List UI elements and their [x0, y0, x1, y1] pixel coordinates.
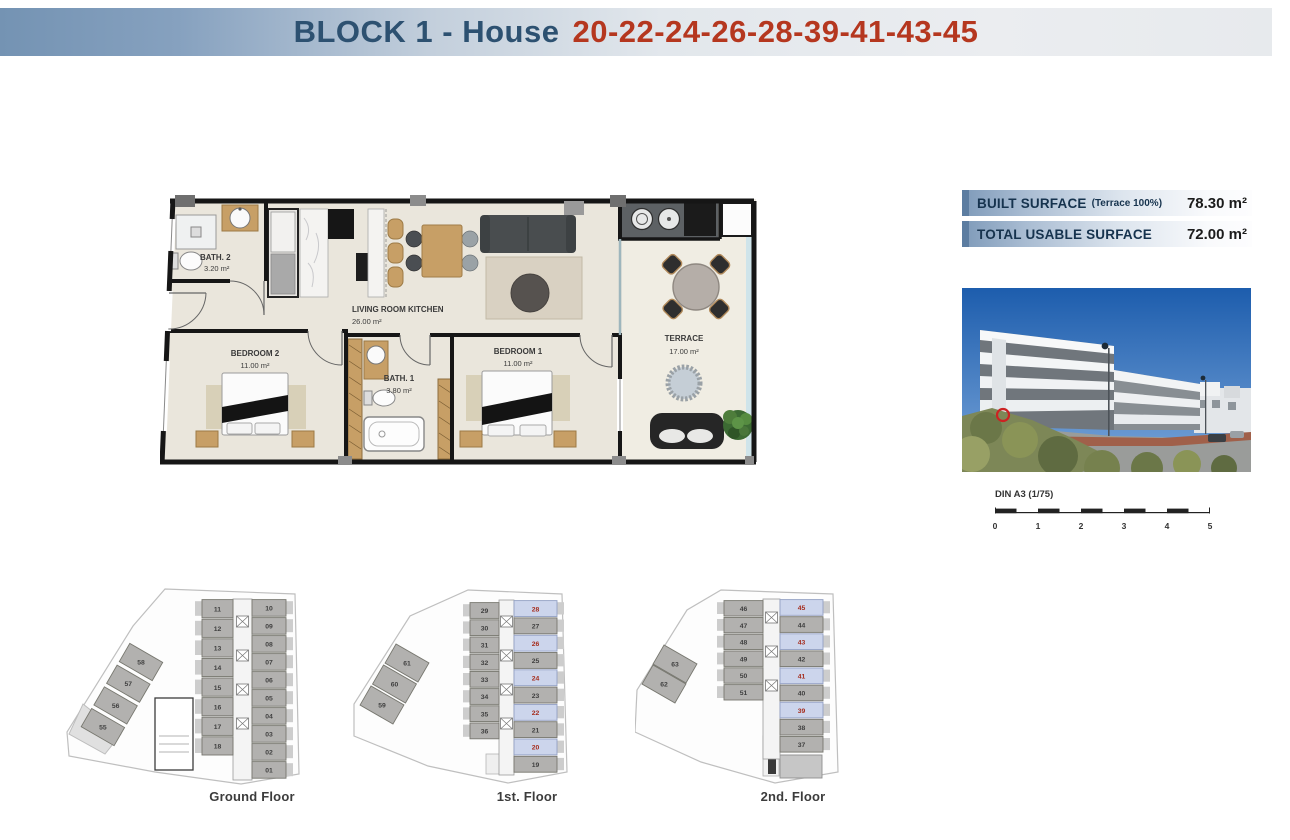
terrace-table	[673, 264, 719, 310]
scale-segment	[1038, 509, 1060, 514]
closet-shelf	[271, 212, 295, 252]
balcony-tab	[717, 602, 724, 614]
bar-stool	[388, 243, 403, 263]
unit-number: 50	[740, 673, 748, 680]
unit-number: 14	[214, 665, 222, 672]
balcony-tab	[463, 673, 470, 685]
balcony-tab	[823, 670, 830, 682]
unit-number: 40	[798, 691, 806, 698]
unit-number: 62	[660, 681, 668, 688]
unit-number: 55	[99, 725, 107, 732]
pillow	[227, 423, 252, 434]
page-title-house-numbers: 20-22-24-26-28-39-41-43-45	[572, 14, 978, 50]
bath2-sink	[230, 208, 250, 228]
sofa-arm	[566, 215, 576, 253]
unnumbered-unit	[780, 755, 822, 778]
scale-tick: 1	[1036, 521, 1041, 531]
unit-number: 47	[740, 623, 748, 630]
second-floor-svg: 4647484950514544434241403938376362	[635, 586, 885, 788]
unit-number: 13	[214, 646, 222, 653]
terrace-cushion	[687, 429, 713, 443]
scale-tick: 0	[993, 521, 998, 531]
unit-number: 23	[532, 693, 540, 700]
unit-number: 56	[112, 703, 120, 710]
shower-drain	[191, 227, 201, 237]
scale-segment	[995, 509, 1017, 514]
scale-segment	[1124, 509, 1146, 514]
unit-number: 04	[265, 714, 273, 721]
unit-number: 37	[798, 742, 806, 749]
unit-number: 22	[532, 710, 540, 717]
scale-tick: 3	[1122, 521, 1127, 531]
balcony-tab	[195, 680, 202, 695]
dining-chair	[406, 255, 422, 271]
balcony-tab	[823, 618, 830, 630]
scale-tick: 4	[1165, 521, 1170, 531]
unit-number: 42	[798, 656, 806, 663]
balcony-tab	[463, 621, 470, 633]
balcony-tab	[463, 690, 470, 702]
stair-core	[768, 758, 776, 774]
second-floor-label: 2nd. Floor	[761, 789, 826, 804]
pillow	[488, 425, 514, 436]
unit-number: 46	[740, 606, 748, 613]
balcony-tab	[557, 689, 564, 701]
scale-tick: 5	[1208, 521, 1213, 531]
bath1-area: 3.80 m²	[386, 386, 412, 395]
built-surface-value: 78.30 m²	[1187, 195, 1247, 212]
balcony-tab	[557, 706, 564, 718]
apartment-floor-plan: BATH. 2 3.20 m² LIVING ROOM KITCHEN 26.0…	[160, 193, 760, 470]
balcony-tab	[286, 619, 293, 632]
ground-floor-label: Ground Floor	[209, 789, 294, 804]
closet-shelf-dark	[271, 254, 295, 294]
unit-number: 28	[532, 606, 540, 613]
scale-label: DIN A3 (1/75)	[995, 489, 1213, 500]
nightstand	[292, 431, 314, 447]
unit-number: 01	[265, 768, 273, 775]
unit-number: 18	[214, 744, 222, 751]
bedroom1-label: BEDROOM 1	[494, 347, 543, 356]
living-label: LIVING ROOM KITCHEN	[352, 305, 444, 314]
scale-segment	[1081, 509, 1103, 514]
surface-panel: BUILT SURFACE (Terrace 100%) 78.30 m² TO…	[962, 190, 1252, 252]
terrace-sofa	[650, 413, 724, 449]
unit-number: 48	[740, 640, 748, 647]
unit-number: 57	[125, 681, 133, 688]
toilet-tank	[364, 391, 372, 405]
header-band: BLOCK 1 - House 20-22-24-26-28-39-41-43-…	[0, 8, 1272, 56]
unit-number: 41	[798, 674, 806, 681]
balcony-tab	[195, 738, 202, 753]
balcony-tab	[286, 655, 293, 668]
unit-number: 36	[481, 729, 489, 736]
balcony-tab	[286, 673, 293, 686]
wardrobe	[348, 339, 362, 459]
unit-number: 43	[798, 639, 806, 646]
background-buildings	[1194, 382, 1251, 433]
unit-number: 32	[481, 660, 489, 667]
unit-number: 16	[214, 704, 222, 711]
unit-number: 63	[671, 661, 679, 668]
kitchen-island	[368, 209, 384, 297]
sofa-arm	[480, 215, 490, 253]
balcony-tab	[557, 723, 564, 735]
first-floor-label: 1st. Floor	[497, 789, 558, 804]
balcony-tab	[557, 602, 564, 614]
washer-icon	[632, 209, 653, 230]
balcony-tab	[823, 738, 830, 750]
scale-end-tick	[995, 508, 996, 514]
balcony-tab	[717, 619, 724, 631]
dining-table	[422, 225, 462, 277]
storage-box	[722, 203, 752, 236]
coffee-pouf	[511, 274, 549, 312]
row-accent-bar	[962, 221, 969, 247]
dining-chair	[462, 231, 478, 247]
living-area: 26.00 m²	[352, 317, 382, 326]
balcony-tab	[195, 640, 202, 655]
scale-bar-graphic	[995, 506, 1210, 515]
unit-number: 19	[532, 762, 540, 769]
balcony-tab	[286, 727, 293, 740]
built-surface-label: BUILT SURFACE	[977, 196, 1087, 211]
unit-number: 49	[740, 656, 748, 663]
balcony-tab	[195, 699, 202, 714]
unit-number: 31	[481, 643, 489, 650]
unit-number: 44	[798, 622, 806, 629]
terrace-round-rug	[668, 367, 700, 399]
bath2-area: 3.20 m²	[204, 264, 230, 273]
scale-ticks: 0 1 2 3 4 5	[995, 521, 1210, 533]
building-photo	[962, 288, 1251, 472]
balcony-tab	[717, 686, 724, 698]
scale-end-tick	[1209, 508, 1210, 514]
balcony-tab	[557, 637, 564, 649]
unit-number: 08	[265, 642, 273, 649]
second-floor-plan: 4647484950514544434241403938376362 2nd. …	[635, 586, 890, 821]
scale-bar: DIN A3 (1/75) 0 1 2 3 4 5	[995, 489, 1213, 533]
balcony-tab	[557, 654, 564, 666]
balcony-tab	[463, 604, 470, 616]
balcony-tab	[463, 639, 470, 651]
unit-number: 45	[798, 605, 806, 612]
built-surface-note: (Terrace 100%)	[1092, 198, 1162, 209]
balcony-tab	[557, 620, 564, 632]
dining-chair	[462, 255, 478, 271]
balcony-tab	[557, 758, 564, 770]
dining-chair	[406, 231, 422, 247]
unit-number: 24	[532, 675, 540, 682]
unit-number: 27	[532, 624, 540, 631]
apartment-floor-plan-svg: BATH. 2 3.20 m² LIVING ROOM KITCHEN 26.0…	[160, 193, 760, 470]
balcony-tab	[823, 635, 830, 647]
balcony-tab	[286, 691, 293, 704]
bath1-label: BATH. 1	[384, 374, 415, 383]
balcony-tab	[557, 671, 564, 683]
unit-number: 11	[214, 606, 221, 613]
courtyard	[155, 698, 193, 770]
pillow	[520, 425, 546, 436]
unit-number: 10	[265, 606, 273, 613]
unit-number: 17	[214, 724, 222, 731]
unit-number: 59	[378, 702, 386, 709]
first-floor-svg: 2930313233343536282726252423222120196160…	[340, 586, 590, 788]
scale-segment	[1167, 509, 1189, 514]
unit-number: 15	[214, 685, 222, 692]
nightstand	[554, 431, 576, 447]
unit-number: 34	[481, 694, 489, 701]
unit-number: 09	[265, 624, 273, 631]
bar-stool	[388, 267, 403, 287]
unit-number: 61	[403, 660, 411, 667]
pillow	[255, 423, 280, 434]
balcony-tab	[463, 707, 470, 719]
unit-number: 38	[798, 725, 806, 732]
unit-number: 02	[265, 750, 273, 757]
nightstand	[196, 431, 218, 447]
utility-sink-drain	[667, 217, 671, 221]
unit-number: 60	[391, 681, 399, 688]
faucet	[238, 207, 241, 210]
terrace-cushion	[659, 429, 685, 443]
unit-number: 05	[265, 696, 273, 703]
usable-surface-row: TOTAL USABLE SURFACE 72.00 m²	[962, 221, 1252, 247]
unit-number: 20	[532, 745, 540, 752]
row-accent-bar	[962, 190, 969, 216]
balcony-tab	[823, 704, 830, 716]
unit-number: 29	[481, 608, 489, 615]
unit-number: 21	[532, 727, 540, 734]
kitchen-counter	[300, 209, 328, 297]
balcony-tab	[195, 621, 202, 636]
unit-number: 30	[481, 625, 489, 632]
terrace-area: 17.00 m²	[669, 347, 699, 356]
unit-number: 26	[532, 641, 540, 648]
unit-number: 25	[532, 658, 540, 665]
usable-surface-value: 72.00 m²	[1187, 226, 1247, 243]
built-surface-row: BUILT SURFACE (Terrace 100%) 78.30 m²	[962, 190, 1252, 216]
balcony-tab	[823, 721, 830, 733]
balcony-tab	[557, 741, 564, 753]
balcony-tab	[463, 656, 470, 668]
bath2-toilet	[180, 252, 202, 270]
first-floor-plan: 2930313233343536282726252423222120196160…	[340, 586, 595, 821]
balcony-tab	[463, 725, 470, 737]
balcony-tab	[286, 763, 293, 776]
unit-number: 06	[265, 678, 273, 685]
terrace-plant	[723, 410, 753, 440]
unit-number: 58	[137, 659, 145, 666]
bath2-label: BATH. 2	[200, 253, 231, 262]
ground-floor-plan: 1112131415161718100908070605040302015857…	[55, 586, 310, 821]
unit-number: 03	[265, 732, 273, 739]
bedroom1-area: 11.00 m²	[503, 359, 533, 368]
page-title: BLOCK 1 - House	[294, 14, 560, 50]
nightstand	[460, 431, 482, 447]
balcony-tab	[286, 745, 293, 758]
unit-number: 39	[798, 708, 806, 715]
unit-number: 35	[481, 711, 489, 718]
unit-number: 07	[265, 660, 273, 667]
usable-surface-label: TOTAL USABLE SURFACE	[977, 227, 1152, 242]
balcony-tab	[195, 601, 202, 616]
balcony-tab	[717, 669, 724, 681]
scale-tick: 2	[1079, 521, 1084, 531]
utility-unit	[684, 203, 716, 236]
balcony-tab	[717, 653, 724, 665]
terrace-label: TERRACE	[665, 334, 704, 343]
wardrobe	[438, 379, 452, 459]
balcony-tab	[286, 709, 293, 722]
balcony-tab	[286, 637, 293, 650]
balcony-tab	[195, 719, 202, 734]
unit-number: 12	[214, 626, 222, 633]
building-photo-svg	[962, 288, 1251, 472]
balcony-tab	[823, 687, 830, 699]
ground-floor-svg: 1112131415161718100908070605040302015857…	[55, 586, 305, 788]
unit-number: 51	[740, 690, 748, 697]
bath1-sink	[367, 346, 385, 364]
balcony-tab	[823, 653, 830, 665]
balcony-tab	[823, 601, 830, 613]
landing	[486, 754, 500, 774]
bedroom2-area: 11.00 m²	[240, 361, 270, 370]
bar-stool	[388, 219, 403, 239]
unit-number: 33	[481, 677, 489, 684]
balcony-tab	[195, 660, 202, 675]
bedroom2-label: BEDROOM 2	[231, 349, 280, 358]
balcony-tab	[717, 636, 724, 648]
fridge	[328, 209, 354, 239]
balcony-tab	[286, 601, 293, 614]
